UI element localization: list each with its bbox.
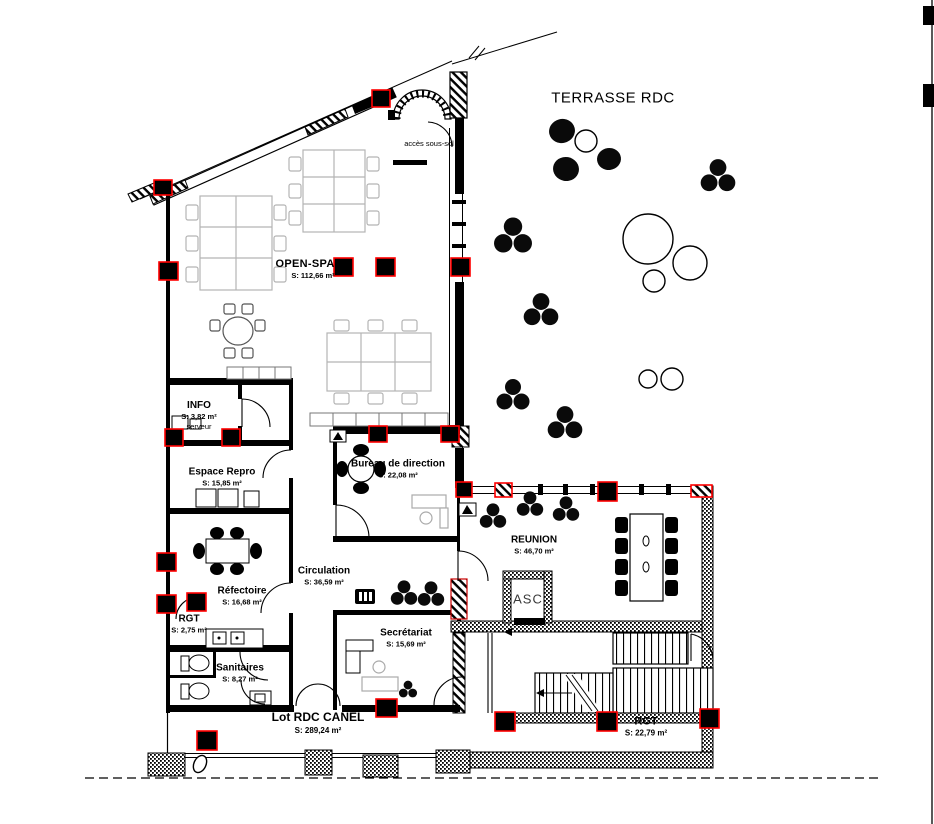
room-note: serveur — [181, 422, 216, 432]
room-area: S: 15,69 m² — [380, 640, 432, 650]
room-label-info: INFO S: 3,82 m² serveur — [181, 399, 216, 432]
bottom-edge — [85, 750, 882, 778]
room-area: S: 3,82 m² — [181, 412, 216, 422]
page-edge-marks — [923, 0, 934, 824]
floor-plan-drawing — [0, 0, 934, 824]
room-label-rgt-large: RGT S: 22,79 m² — [625, 715, 667, 740]
room-label-refectoire: Réfectoire S: 16,68 m² — [218, 585, 267, 608]
room-area: S: 16,68 m² — [218, 598, 267, 608]
room-label-asc: ASC — [513, 592, 543, 609]
room-name: RGT — [625, 715, 667, 729]
open-space-round-table — [210, 304, 265, 358]
room-area: S: 15,85 m² — [189, 479, 256, 489]
room-name: Bureau de direction — [351, 458, 445, 471]
room-name: REUNION — [511, 534, 557, 547]
terrace-label: TERRASSE RDC — [551, 88, 675, 108]
room-area: S: 2,75 m² — [171, 626, 206, 636]
dining-table — [206, 539, 249, 563]
room-area: S: 22,79 m² — [625, 729, 667, 739]
conference-table-set — [615, 514, 678, 601]
room-area: S: 46,70 m² — [511, 547, 557, 557]
basement-access-label: accès sous-sol — [404, 139, 454, 149]
room-label-circulation: Circulation S: 36,59 m² — [298, 565, 350, 588]
room-label-reunion: REUNION S: 46,70 m² — [511, 534, 557, 557]
copier — [196, 489, 216, 507]
room-name: Réfectoire — [218, 585, 267, 598]
room-area: S: 289,24 m² — [272, 726, 365, 736]
room-label-secretariat: Secrétariat S: 15,69 m² — [380, 627, 432, 650]
room-name: Espace Repro — [189, 466, 256, 479]
stairs — [496, 633, 713, 723]
radiator-icon — [355, 589, 375, 604]
room-name: Sanitaires — [216, 662, 264, 675]
room-name: Lot RDC CANEL — [272, 710, 365, 726]
floor-plan: TERRASSE RDC accès sous-sol OPEN-SPACE S… — [0, 0, 934, 824]
room-label-espace-repro: Espace Repro S: 15,85 m² — [189, 466, 256, 489]
room-area: S: 22,08 m² — [351, 471, 445, 481]
room-area: S: 112,66 m² — [276, 271, 351, 281]
room-label-sanitaires: Sanitaires S: 8,27 m² — [216, 662, 264, 685]
copier — [244, 491, 259, 507]
room-name: Secrétariat — [380, 627, 432, 640]
room-area: S: 8,27 m² — [216, 675, 264, 685]
room-label-bureau-direction: Bureau de direction S: 22,08 m² — [351, 458, 445, 481]
room-name: RGT — [171, 613, 206, 626]
room-name: OPEN-SPACE — [276, 257, 351, 271]
room-label-open-space: OPEN-SPACE S: 112,66 m² — [276, 257, 351, 281]
room-label-rgt-small: RGT S: 2,75 m² — [171, 613, 206, 636]
room-area: S: 36,59 m² — [298, 578, 350, 588]
room-label-lot-rdc-canel: Lot RDC CANEL S: 289,24 m² — [272, 710, 365, 736]
room-name: Circulation — [298, 565, 350, 578]
terrace-trees — [494, 116, 735, 438]
room-name: INFO — [181, 399, 216, 412]
copier — [218, 489, 238, 507]
